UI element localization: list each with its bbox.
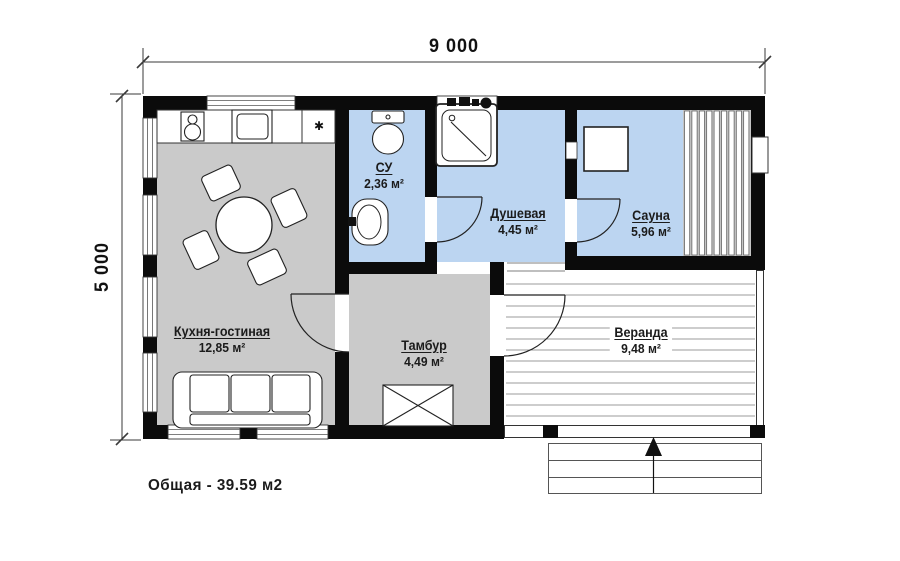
toilet-icon [372, 111, 404, 154]
room-area: 5,96 м² [631, 224, 671, 240]
dimension-left [110, 90, 141, 445]
room-label-veranda: Веранда 9,48 м² [610, 325, 673, 357]
sauna-stove-vent [566, 142, 577, 159]
sofa [173, 372, 322, 428]
entry-arrow-icon [645, 437, 662, 493]
dimension-width-label: 9 000 [429, 36, 479, 58]
shower-tray-icon [436, 97, 497, 166]
kitchen-sink-icon [232, 110, 272, 143]
washbasin-icon [348, 199, 388, 245]
room-label-wc: СУ 2,36 м² [364, 160, 404, 192]
dining-table [216, 197, 272, 253]
floor-plan: 9 000 5 000 Кухня-гостиная 12,85 м² СУ 2… [0, 0, 900, 561]
room-label-tambour: Тамбур 4,49 м² [401, 338, 447, 370]
room-area: 4,49 м² [401, 354, 447, 370]
room-name: Сауна [631, 208, 671, 224]
room-area: 9,48 м² [614, 341, 667, 357]
room-area: 12,85 м² [174, 340, 270, 356]
total-area-label: Общая - 39.59 м2 [148, 477, 283, 495]
dimension-height-label: 5 000 [92, 242, 114, 292]
floor-plan-drawing [0, 0, 900, 561]
stove-icon [181, 112, 204, 141]
sauna-stove-icon [584, 127, 628, 171]
room-name: Тамбур [401, 338, 447, 354]
room-area: 4,45 м² [490, 222, 545, 238]
utility-mark: ✱ [314, 119, 324, 133]
room-name: Кухня-гостиная [174, 324, 270, 340]
room-label-sauna: Сауна 5,96 м² [631, 208, 671, 240]
closet-icon [383, 385, 453, 426]
door-veranda [490, 295, 565, 356]
room-name: Веранда [614, 325, 667, 341]
room-label-shower: Душевая 4,45 м² [490, 206, 545, 238]
room-name: СУ [364, 160, 404, 176]
room-area: 2,36 м² [364, 176, 404, 192]
sauna-bench [683, 110, 751, 256]
room-label-kitchen: Кухня-гостиная 12,85 м² [174, 324, 270, 356]
room-name: Душевая [490, 206, 545, 222]
sauna-window [752, 137, 768, 173]
